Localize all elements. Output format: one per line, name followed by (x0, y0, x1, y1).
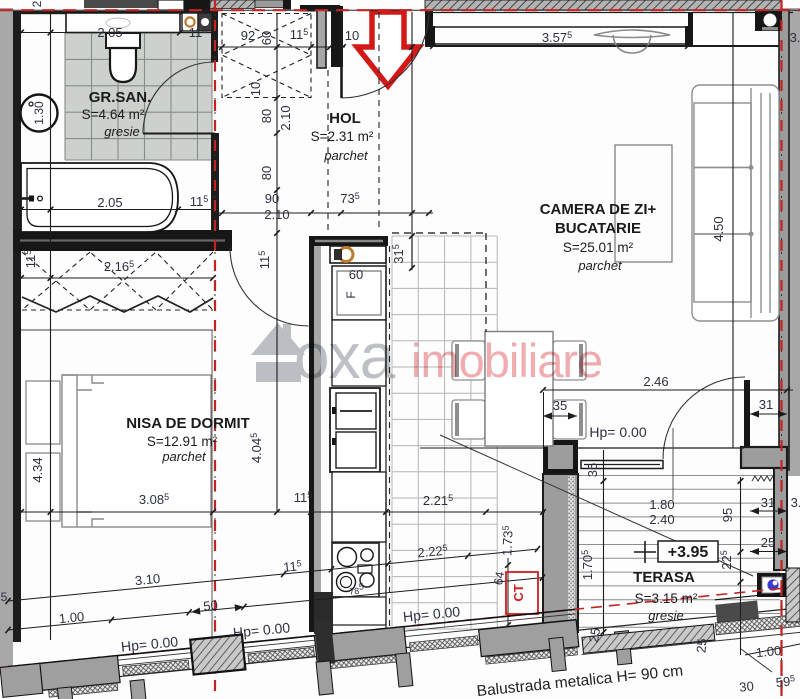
svg-text:80: 80 (259, 109, 274, 123)
svg-text:2.05: 2.05 (97, 25, 122, 40)
svg-text:TERASA: TERASA (633, 569, 695, 586)
svg-text:64: 64 (491, 570, 507, 586)
svg-text:S=12.91 m²: S=12.91 m² (147, 434, 218, 449)
svg-text:HOL: HOL (329, 110, 361, 127)
svg-text:1.80: 1.80 (649, 497, 674, 512)
svg-text:S=2.31 m²: S=2.31 m² (311, 129, 374, 144)
svg-text:parchet: parchet (323, 148, 369, 163)
svg-text:GR.SAN.: GR.SAN. (89, 89, 152, 106)
svg-text:30: 30 (739, 678, 755, 694)
svg-text:1.30: 1.30 (32, 101, 46, 125)
svg-text:5: 5 (1, 590, 8, 604)
svg-text:1.00: 1.00 (58, 609, 85, 626)
svg-text:25: 25 (693, 638, 709, 654)
svg-text:90: 90 (265, 191, 279, 206)
svg-text:60: 60 (259, 31, 274, 45)
svg-text:95: 95 (720, 508, 735, 522)
svg-text:3.10: 3.10 (134, 571, 161, 588)
svg-text:CT: CT (511, 584, 526, 601)
svg-text:2.10: 2.10 (278, 105, 293, 130)
svg-text:3.: 3. (790, 30, 800, 45)
svg-text:BUCATARIE: BUCATARIE (555, 220, 641, 237)
svg-text:S=3.15 m²: S=3.15 m² (635, 591, 698, 606)
svg-text:50: 50 (203, 597, 219, 613)
svg-text:10: 10 (248, 82, 263, 96)
svg-text:31: 31 (759, 397, 773, 412)
svg-text:10: 10 (345, 28, 359, 43)
svg-text:3.: 3. (791, 495, 800, 510)
svg-text:80: 80 (259, 166, 274, 180)
svg-text:oxa: oxa (294, 320, 396, 392)
svg-text:2.10: 2.10 (264, 207, 289, 222)
svg-text:1.00: 1.00 (755, 643, 782, 660)
svg-text:60: 60 (349, 267, 363, 282)
svg-text:2.40: 2.40 (649, 512, 674, 527)
svg-text:NISA DE DORMIT: NISA DE DORMIT (126, 415, 250, 432)
svg-text:gresie: gresie (104, 124, 139, 139)
svg-text:25: 25 (586, 627, 603, 644)
svg-text:31: 31 (761, 495, 775, 510)
svg-text:35: 35 (585, 463, 600, 477)
svg-text:parchet: parchet (577, 258, 623, 273)
svg-text:CAMERA DE ZI+: CAMERA DE ZI+ (540, 201, 657, 218)
svg-text:92: 92 (241, 28, 255, 43)
svg-text:S=25.01 m²: S=25.01 m² (563, 240, 634, 255)
svg-text:imobiliare: imobiliare (411, 334, 602, 387)
svg-text:2: 2 (30, 0, 44, 7)
svg-text:F: F (344, 291, 358, 298)
svg-text:2.05: 2.05 (97, 195, 122, 210)
svg-text:4.34: 4.34 (30, 457, 45, 482)
svg-text:Hp= 0.00: Hp= 0.00 (589, 424, 646, 440)
svg-text:+3.95: +3.95 (668, 544, 709, 561)
svg-text:35: 35 (553, 398, 567, 413)
svg-text:2.46: 2.46 (643, 374, 668, 389)
svg-text:S=4.64 m²: S=4.64 m² (82, 107, 145, 122)
svg-text:4.50: 4.50 (711, 216, 726, 241)
svg-text:parchet: parchet (161, 449, 207, 464)
svg-text:25: 25 (761, 535, 775, 550)
